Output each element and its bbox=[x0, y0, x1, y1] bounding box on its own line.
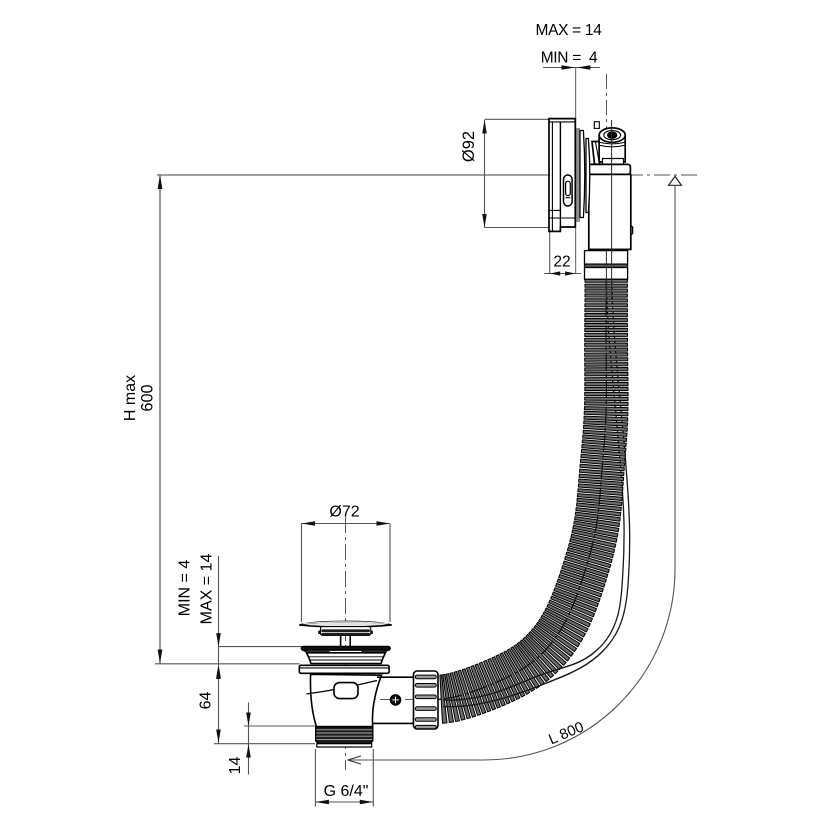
svg-text:22: 22 bbox=[553, 254, 570, 271]
svg-text:14: 14 bbox=[227, 757, 244, 775]
svg-text:H max: H max bbox=[122, 375, 139, 421]
svg-text:Ø72: Ø72 bbox=[329, 504, 359, 521]
svg-text:MIN = 4: MIN = 4 bbox=[177, 560, 194, 617]
svg-text:MAX = 14: MAX = 14 bbox=[535, 22, 602, 39]
svg-text:G 6/4": G 6/4" bbox=[324, 783, 369, 800]
svg-text:Ø92: Ø92 bbox=[460, 131, 478, 162]
svg-text:600: 600 bbox=[139, 384, 157, 411]
svg-text:MIN = 4: MIN = 4 bbox=[541, 50, 598, 67]
svg-text:64: 64 bbox=[198, 692, 215, 710]
svg-text:MAX = 14: MAX = 14 bbox=[199, 554, 216, 625]
